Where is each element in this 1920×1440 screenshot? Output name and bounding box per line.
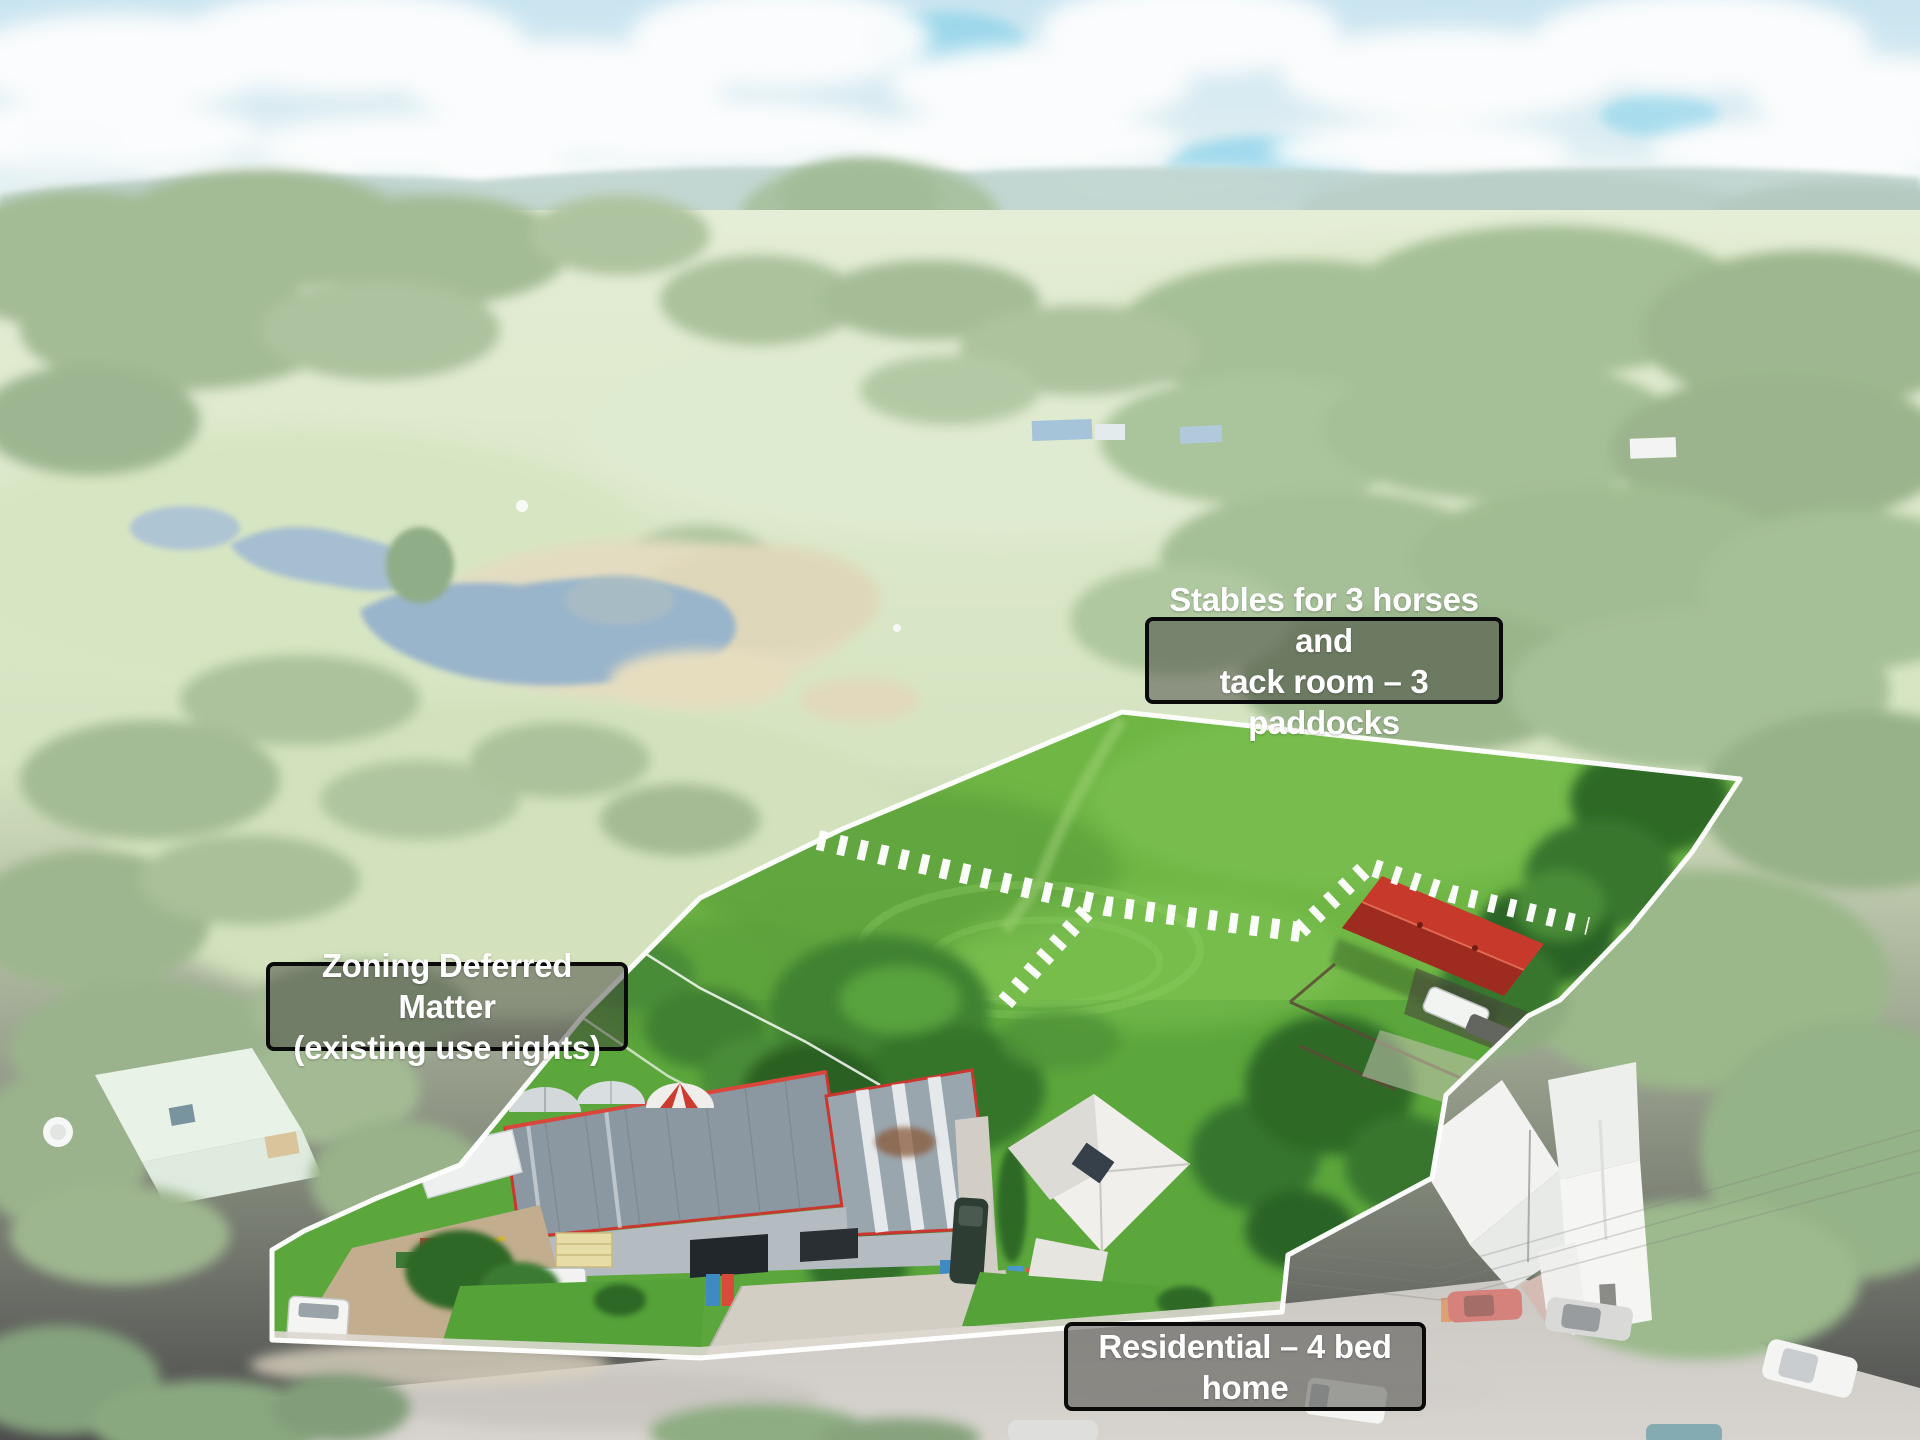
scene	[0, 0, 1920, 1440]
annotation-stables-line2: tack room – 3 paddocks	[1149, 661, 1499, 743]
annotation-residential: Residential – 4 bed home	[1064, 1322, 1426, 1411]
annotation-residential-line1: Residential – 4 bed home	[1068, 1326, 1422, 1408]
annotation-zoning: Zoning Deferred Matter (existing use rig…	[266, 962, 628, 1051]
annotation-stables-line1: Stables for 3 horses and	[1149, 579, 1499, 661]
annotation-zoning-line1: Zoning Deferred Matter	[270, 945, 624, 1027]
annotation-zoning-line2: (existing use rights)	[293, 1027, 600, 1068]
aerial-property-photo: Stables for 3 horses and tack room – 3 p…	[0, 0, 1920, 1440]
annotation-stables: Stables for 3 horses and tack room – 3 p…	[1145, 617, 1503, 704]
